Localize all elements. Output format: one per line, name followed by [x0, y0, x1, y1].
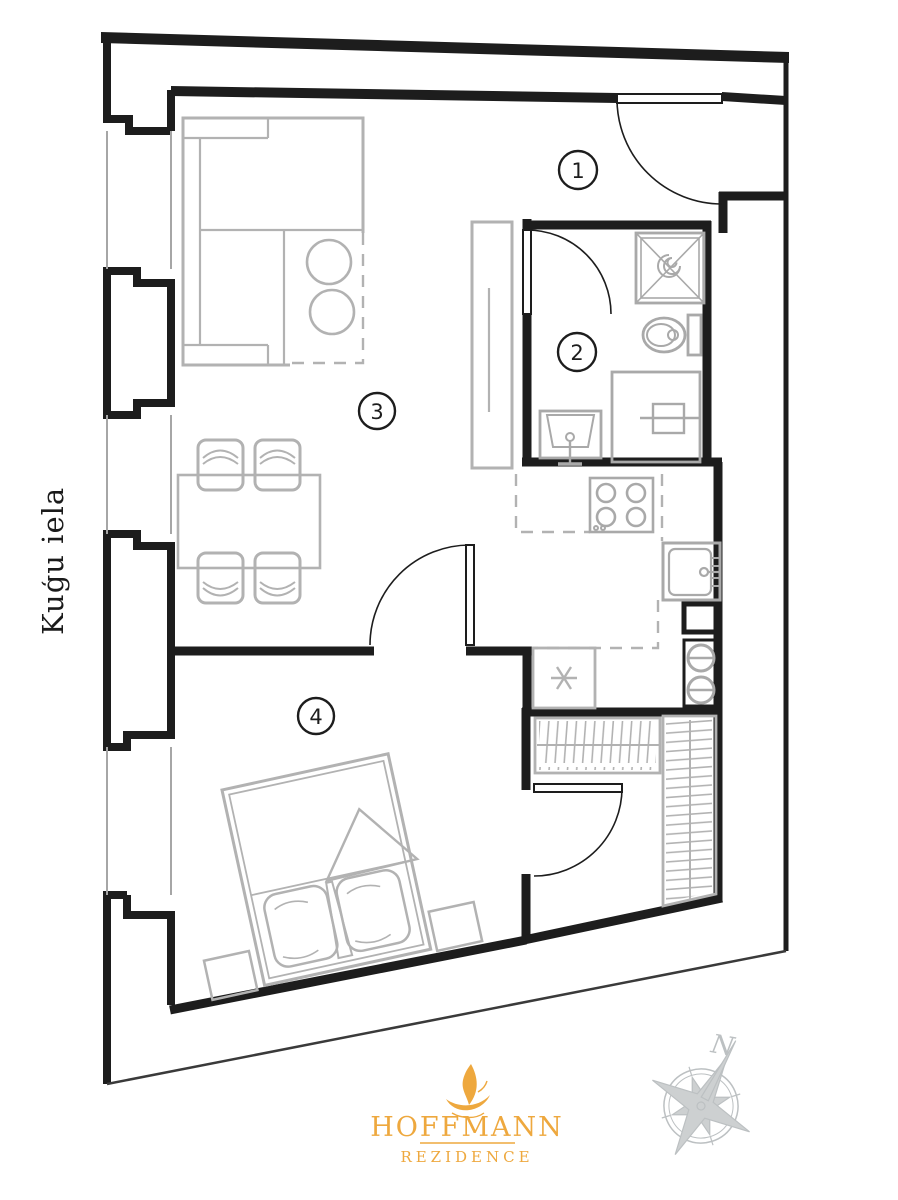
closet-door-leaf — [534, 784, 622, 792]
stove — [590, 478, 653, 532]
sofa — [183, 118, 363, 365]
room-4-label: 4 — [309, 705, 322, 729]
wardrobe-top — [535, 718, 660, 773]
hall-cabinet — [472, 222, 512, 468]
dining-table — [178, 475, 320, 568]
snowflake-icon — [551, 667, 577, 689]
pouf — [310, 290, 354, 334]
dining-chairs — [198, 440, 300, 603]
logo-title: HOFFMANN — [370, 1112, 564, 1143]
top-inner-wall-left — [171, 86, 617, 103]
exterior-walls — [101, 32, 789, 1084]
bottom-outer-boundary — [107, 951, 786, 1084]
left-wall-pier-b — [107, 271, 171, 415]
floor-plan-page: 1 2 3 4 Kuģu iela N — [0, 0, 898, 1200]
compass-rose: N — [627, 1015, 785, 1181]
closet-door-arc — [534, 788, 622, 876]
dining-set — [178, 440, 320, 603]
nightstand — [204, 951, 257, 1000]
closet-bottom-wall — [524, 898, 722, 940]
base-cabinet — [684, 604, 718, 632]
washing-machine — [612, 372, 700, 462]
floor-plan-svg: 1 2 3 4 Kuģu iela N — [0, 0, 898, 1200]
street-label: Kuģu iela — [36, 487, 70, 635]
room-3-label: 3 — [370, 400, 383, 424]
room-2-label: 2 — [570, 341, 583, 365]
left-wall-pier-d — [107, 895, 171, 1084]
logo-flame-icon — [446, 1064, 490, 1118]
bathroom-door-leaf — [523, 230, 531, 314]
logo-subtitle: REZIDENCE — [400, 1148, 533, 1166]
toilet — [643, 315, 701, 355]
window-openings — [107, 131, 171, 895]
kitchen-sink — [663, 543, 720, 600]
bathroom-door-arc — [527, 230, 611, 314]
fridge — [533, 648, 595, 708]
north-label: N — [708, 1029, 738, 1063]
room-1-label: 1 — [571, 159, 584, 183]
top-outer-wall — [101, 32, 789, 63]
bedroom-door-leaf — [466, 545, 474, 645]
pillow — [334, 868, 412, 954]
shower-drain-spiral — [658, 255, 680, 277]
entrance-door-arc — [617, 99, 722, 204]
logo: HOFFMANN REZIDENCE — [370, 1064, 564, 1166]
top-inner-wall-right — [722, 92, 786, 105]
entrance-door-leaf — [617, 94, 722, 103]
kitchen — [516, 474, 720, 708]
bathroom-sink — [540, 411, 601, 464]
wardrobe-right — [663, 716, 716, 906]
pouf — [307, 240, 351, 284]
bedroom-bottom-wall — [170, 940, 526, 1010]
sofa-dashed-extension — [290, 233, 363, 363]
wardrobes — [535, 716, 716, 906]
shower — [636, 233, 704, 303]
bedroom-door-arc — [370, 545, 470, 645]
nightstand — [429, 902, 482, 951]
left-wall-pier-c — [107, 534, 171, 747]
left-wall-pier-a — [107, 34, 171, 131]
